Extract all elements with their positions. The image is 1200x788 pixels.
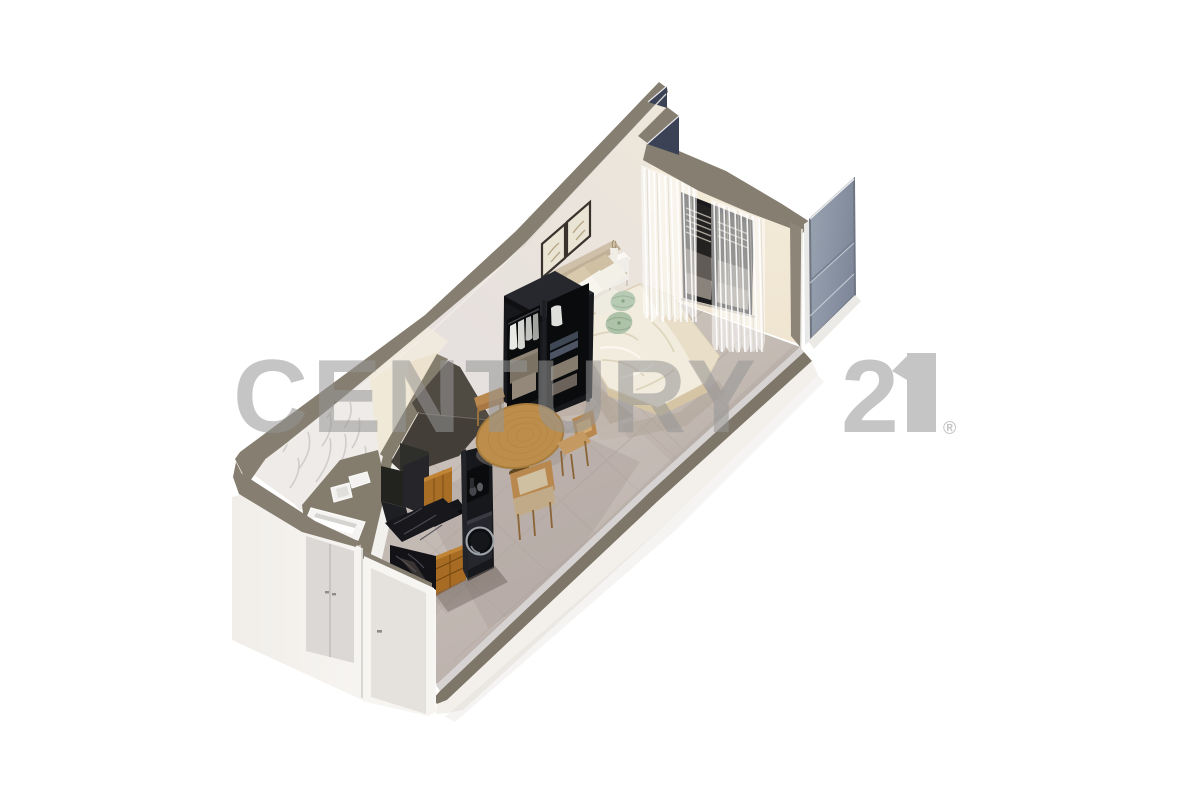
- svg-text:®: ®: [943, 418, 956, 438]
- svg-text:2: 2: [841, 339, 899, 455]
- svg-text:CENTURY: CENTURY: [233, 339, 760, 455]
